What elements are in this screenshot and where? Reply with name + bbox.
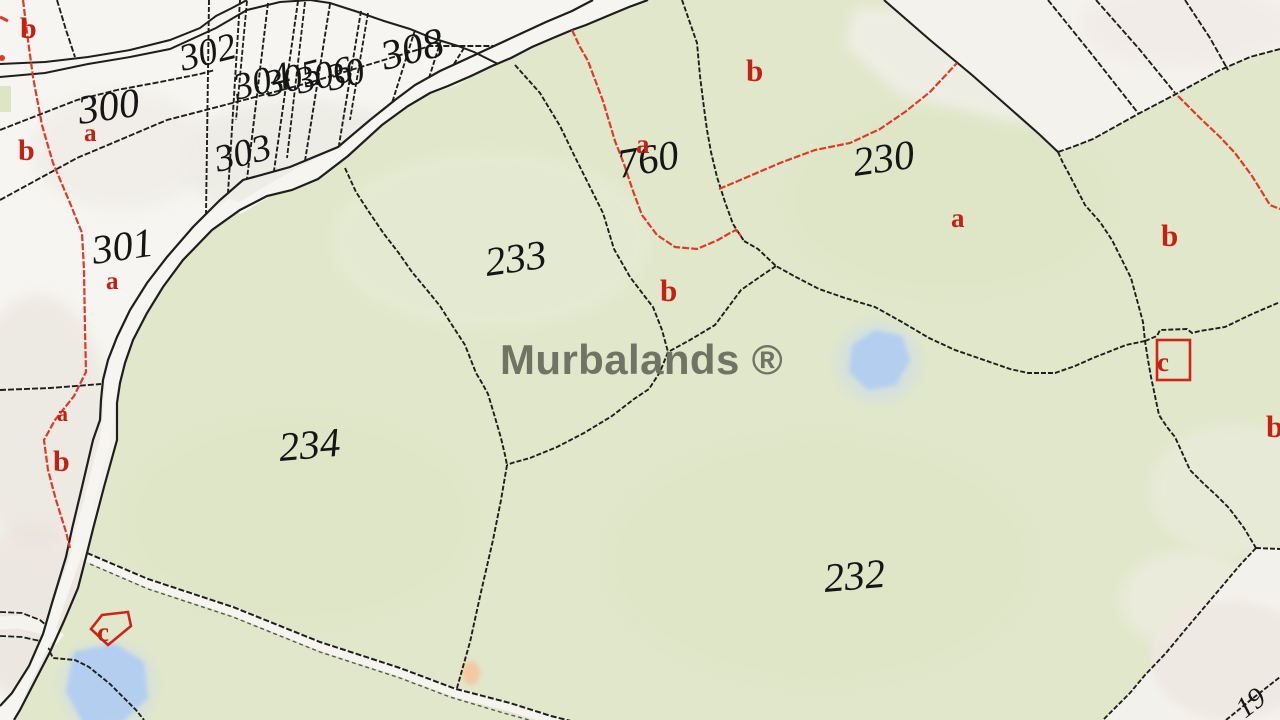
svg-text:b: b — [20, 12, 37, 45]
svg-text:a: a — [636, 129, 650, 159]
svg-text:230: 230 — [850, 131, 917, 185]
svg-text:Murbalands ®: Murbalands ® — [500, 336, 783, 383]
svg-text:234: 234 — [277, 419, 342, 470]
svg-text:b: b — [53, 445, 70, 478]
svg-text:b: b — [18, 134, 35, 167]
svg-text:c: c — [1157, 347, 1169, 377]
svg-text:233: 233 — [482, 231, 549, 285]
svg-text:b: b — [1161, 218, 1178, 253]
svg-text:a: a — [106, 268, 119, 295]
svg-text:232: 232 — [822, 550, 887, 601]
svg-text:b: b — [1266, 409, 1280, 444]
svg-text:a: a — [57, 401, 68, 426]
svg-text:a: a — [951, 203, 965, 233]
svg-text:b: b — [660, 273, 677, 308]
svg-text:a: a — [84, 120, 97, 147]
svg-text:b: b — [746, 53, 763, 88]
svg-text:c: c — [97, 617, 109, 647]
svg-text:301: 301 — [88, 219, 156, 273]
